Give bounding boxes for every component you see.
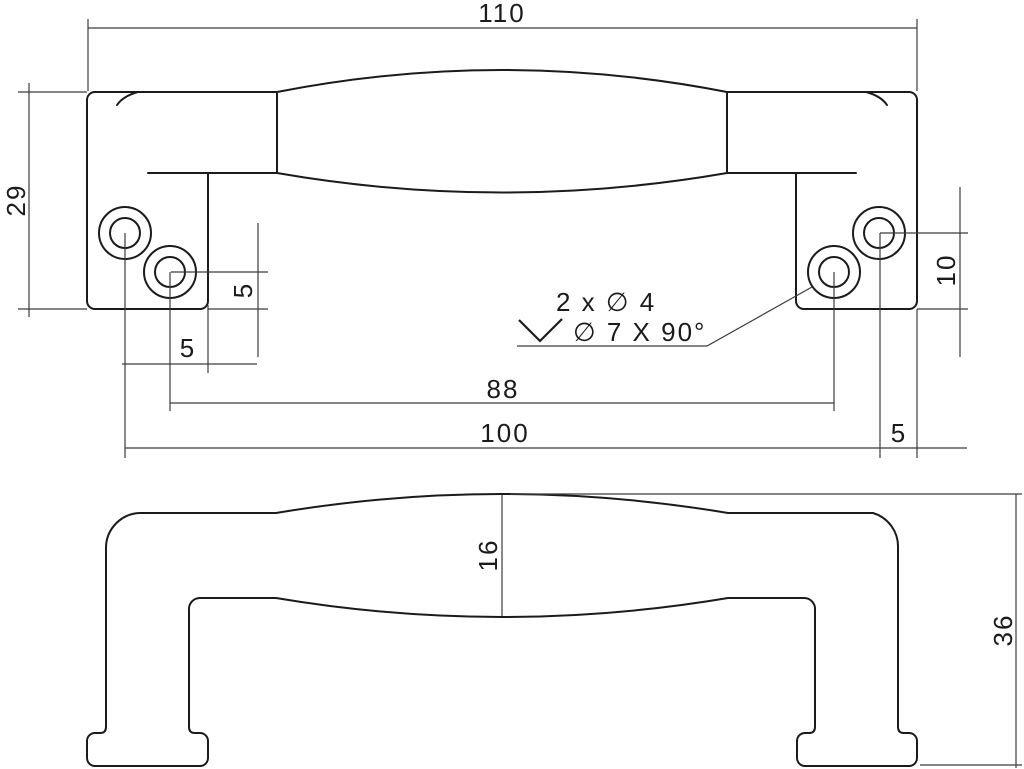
countersink-icon	[519, 319, 562, 341]
dim-hole-edge-horizontal-value: 5	[180, 333, 196, 363]
top-view-bulge-bottom-edge	[277, 173, 727, 193]
dim-hole-right-edge-value: 5	[891, 418, 907, 448]
dim-hole-edge-horizontal: 5	[122, 305, 257, 373]
dim-overall-length: 110	[88, 0, 917, 91]
dim-lines	[88, 19, 917, 91]
dim-hole-bottom-offset: 10	[880, 187, 968, 357]
hole-note: 2 x ∅ 4 ∅ 7 X 90°	[517, 287, 812, 347]
dim-grip-height: 16	[473, 495, 503, 616]
dim-lines	[510, 494, 1022, 768]
top-view: 110 29 5 5 88 100 5	[1, 0, 968, 458]
dim-outer-hole-spacing-value: 100	[480, 418, 529, 448]
dim-overall-length-value: 110	[478, 0, 525, 28]
dim-cap-depth: 29	[1, 83, 87, 317]
dim-hole-bottom-offset-value: 10	[931, 254, 961, 287]
dim-inner-hole-spacing-value: 88	[487, 374, 520, 404]
top-view-right-cap-outline	[796, 92, 917, 309]
hole-note-line1: 2 x ∅ 4	[556, 287, 656, 317]
dim-overall-height: 36	[510, 494, 1022, 768]
side-view: 16 36	[87, 494, 1022, 768]
screw-holes	[99, 207, 905, 298]
dim-hole-edge-vertical-value: 5	[228, 282, 258, 298]
top-view-right-bend-fillet	[866, 92, 887, 105]
technical-drawing-handle: 110 29 5 5 88 100 5	[0, 0, 1024, 769]
hole-note-line2: ∅ 7 X 90°	[573, 317, 706, 347]
top-view-left-bend-fillet	[117, 92, 138, 105]
dim-grip-height-value: 16	[473, 539, 503, 572]
top-view-top-edge-with-bulge	[95, 70, 909, 92]
dim-inner-hole-spacing: 88	[170, 272, 834, 411]
top-view-left-cap-outline	[87, 92, 208, 309]
dim-overall-height-value: 36	[988, 614, 1018, 647]
dim-cap-depth-value: 29	[1, 184, 31, 217]
